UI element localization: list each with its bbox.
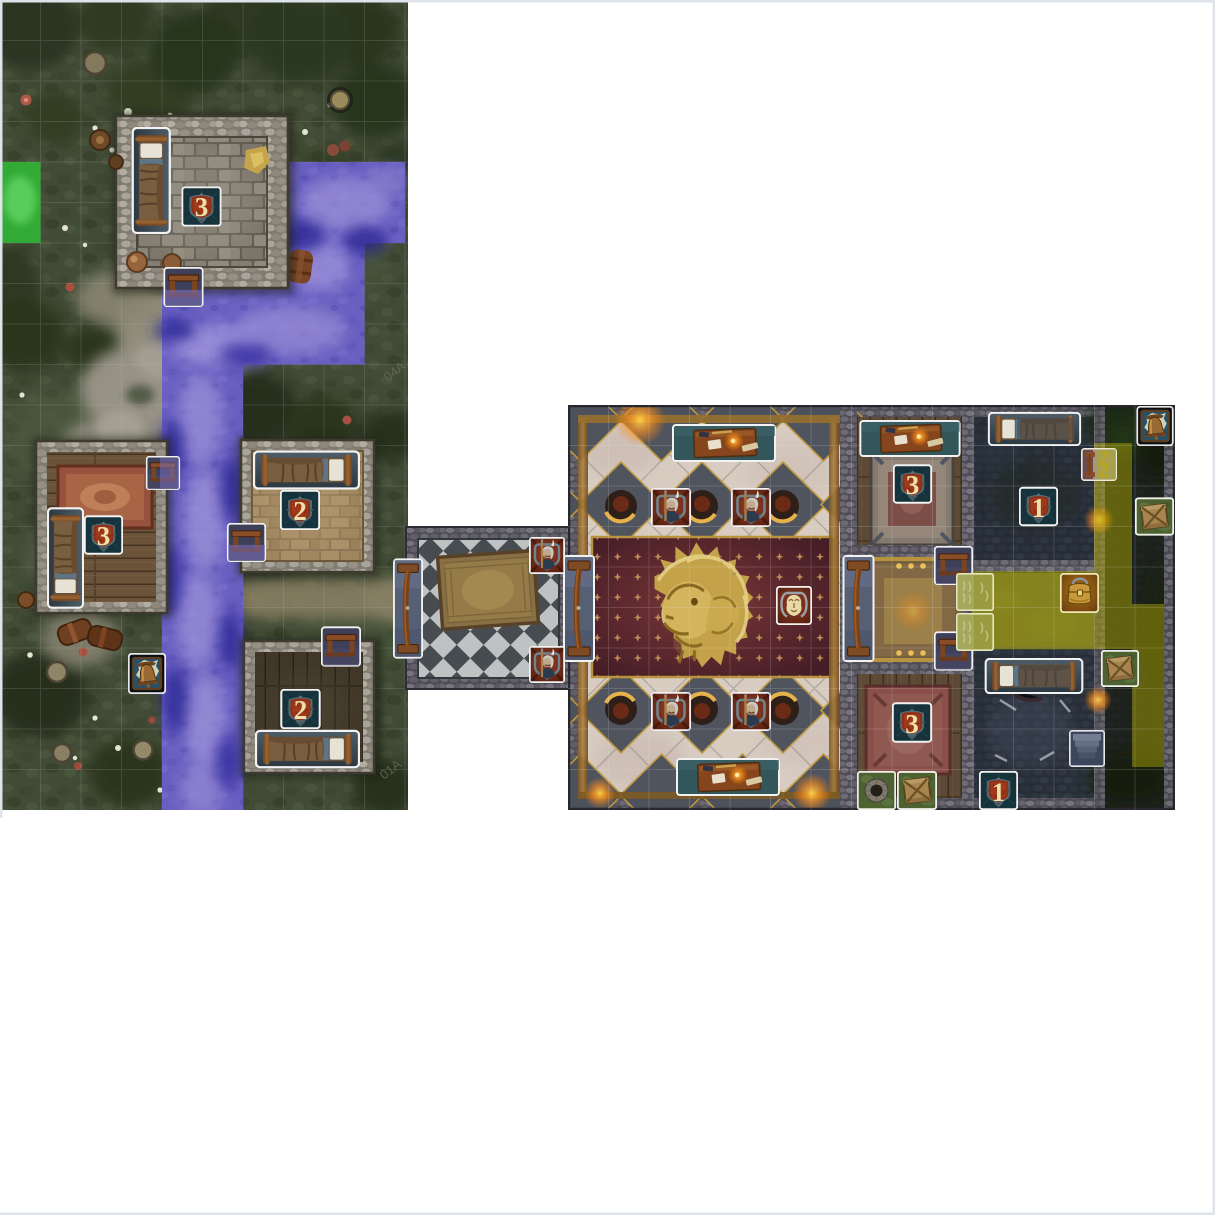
svg-text:1: 1	[992, 778, 1005, 807]
svg-text:3: 3	[905, 709, 919, 739]
svg-text:2: 2	[293, 496, 307, 526]
svg-text:2: 2	[294, 695, 308, 725]
svg-text:3: 3	[906, 470, 920, 500]
svg-text:3: 3	[97, 521, 111, 551]
svg-text:1: 1	[1032, 493, 1046, 523]
svg-text:3: 3	[195, 192, 209, 222]
